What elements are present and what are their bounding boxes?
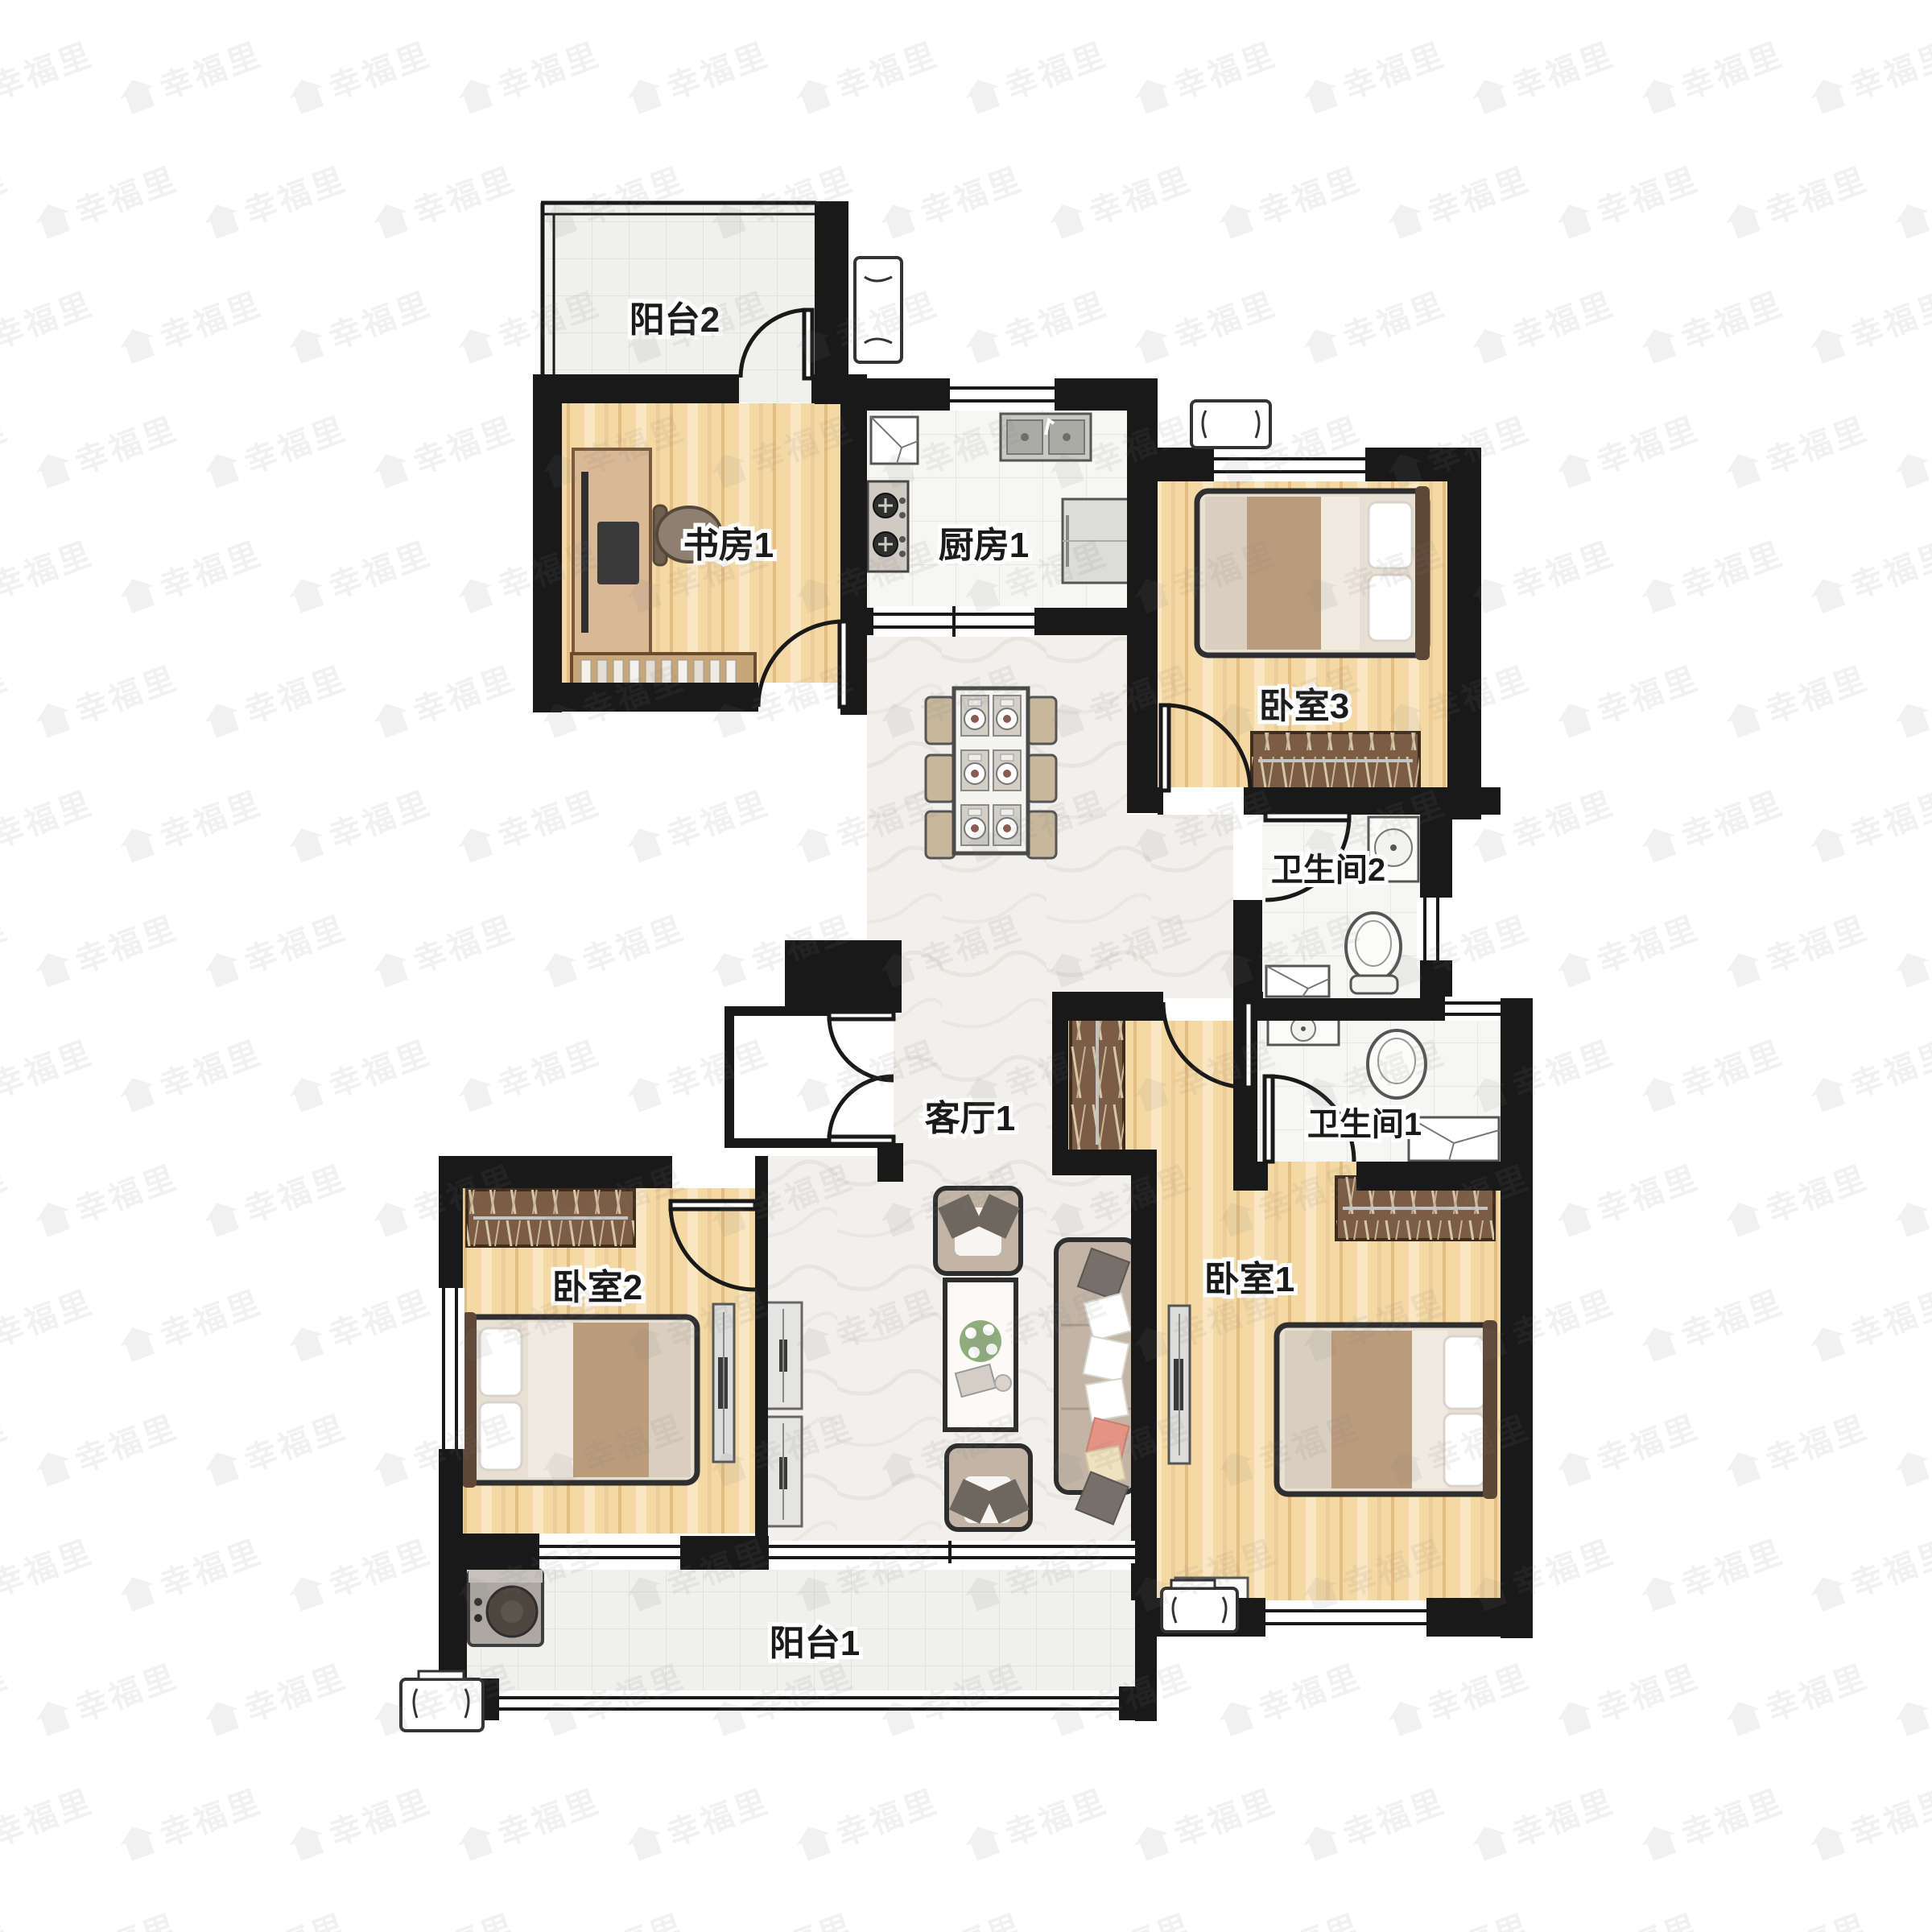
pillow — [1368, 502, 1412, 568]
pillow — [1368, 575, 1412, 641]
dining-chair — [1027, 697, 1056, 744]
armchair — [947, 1446, 1030, 1529]
hall-cabinet — [765, 1417, 802, 1526]
dining-set — [926, 688, 1056, 858]
window-bathroom2 — [1417, 898, 1447, 960]
window-bedroom1 — [1265, 1603, 1426, 1632]
sliding-door-kitchen — [873, 606, 1034, 637]
armchair — [935, 1188, 1021, 1274]
window-bedroom3 — [1214, 451, 1365, 478]
pillow — [1444, 1336, 1484, 1409]
label-bedroom1: 卧室1 — [1204, 1259, 1294, 1299]
floor-plan-svg: 阳台2 书房1 厨房1 卧室3 卫生间2 客厅1 卧室2 卧室1 卫生间1 阳台… — [0, 0, 1932, 1932]
sliding-door-balcony1 — [539, 1541, 1135, 1563]
ac-outdoor-unit-icon — [401, 1671, 483, 1731]
label-kitchen1: 厨房1 — [939, 526, 1029, 565]
bathroom2-shelf — [1266, 966, 1329, 997]
dining-chair — [926, 697, 955, 744]
label-bedroom3: 卧室3 — [1259, 686, 1349, 726]
floor-plan-image: 阳台2 书房1 厨房1 卧室3 卫生间2 客厅1 卧室2 卧室1 卫生间1 阳台… — [0, 0, 1932, 1932]
fridge — [1063, 499, 1130, 583]
wardrobe-bedroom3 — [1252, 733, 1419, 789]
ac-outdoor-unit-icon — [1162, 1580, 1237, 1632]
kitchen-sink — [1001, 414, 1091, 460]
wardrobe-bedroom2 — [467, 1190, 634, 1246]
window-kitchen — [950, 382, 1055, 407]
desk — [573, 449, 650, 657]
coffee-table — [945, 1280, 1016, 1430]
bed-bedroom3 — [1197, 486, 1430, 660]
tv-unit-bedroom1 — [1169, 1306, 1190, 1463]
label-balcony2: 阳台2 — [630, 300, 720, 340]
ac-outdoor-unit-icon — [1191, 401, 1270, 448]
toilet-bathroom2 — [1346, 913, 1401, 993]
label-bathroom1: 卫生间1 — [1307, 1107, 1422, 1142]
dining-chair — [926, 755, 955, 802]
label-balcony1: 阳台1 — [770, 1624, 860, 1663]
hall-cabinet — [765, 1302, 802, 1409]
window-bedroom2 — [437, 1288, 464, 1449]
ac-outdoor-unit-icon — [855, 258, 902, 362]
keyboard-icon — [597, 522, 639, 584]
monitor-icon — [581, 472, 588, 633]
pillow — [480, 1328, 522, 1396]
window-bathroom1 — [1445, 997, 1501, 1021]
pillow — [1444, 1414, 1484, 1486]
stove — [868, 481, 908, 572]
sofa — [1056, 1240, 1137, 1525]
pillow — [480, 1402, 522, 1470]
label-living1: 客厅1 — [925, 1099, 1015, 1138]
bathtub — [1409, 1117, 1499, 1161]
toilet-bathroom1 — [1368, 1030, 1426, 1098]
label-study1: 书房1 — [683, 526, 774, 565]
washing-machine — [469, 1570, 543, 1645]
label-bathroom2: 卫生间2 — [1271, 852, 1385, 888]
window-balcony1 — [499, 1691, 1119, 1715]
wardrobe-bedroom1-entry — [1071, 1013, 1124, 1151]
corridor-floor — [1127, 815, 1233, 998]
dining-chair — [1027, 755, 1056, 802]
dining-chair — [1027, 811, 1056, 858]
flower-icon — [960, 1320, 1001, 1362]
kitchen-corner-shelf — [871, 417, 918, 464]
label-bedroom2: 卧室2 — [552, 1267, 642, 1307]
bed-bedroom1 — [1277, 1320, 1497, 1499]
bed-bedroom2 — [462, 1312, 697, 1488]
dining-chair — [926, 811, 955, 858]
tv-unit-bedroom2 — [713, 1304, 734, 1462]
